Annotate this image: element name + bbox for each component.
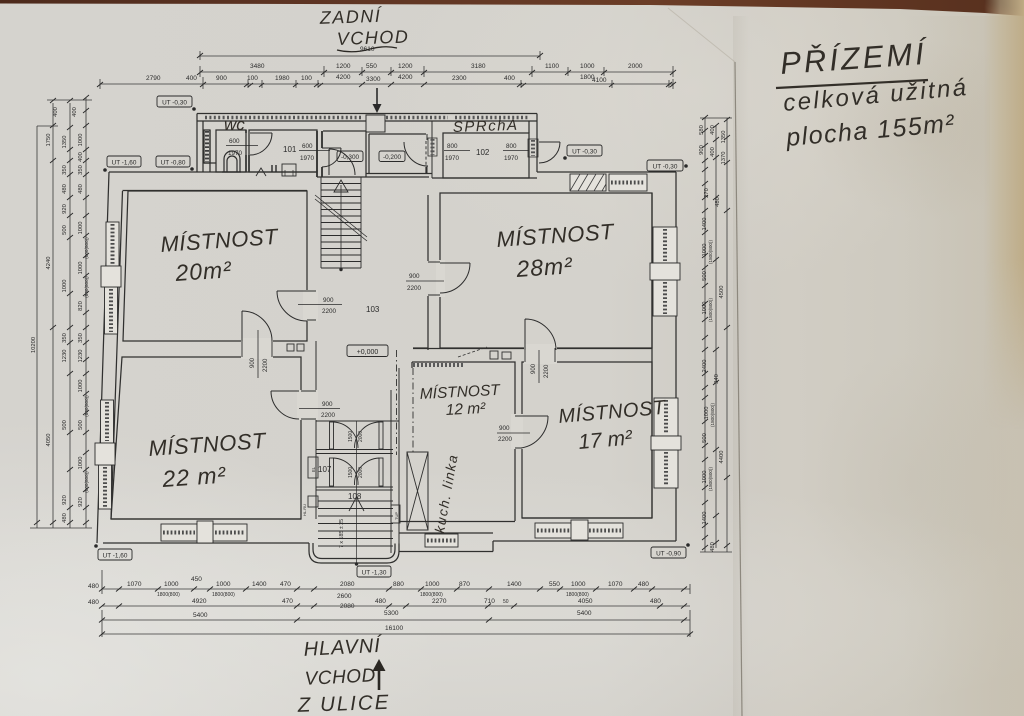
svg-text:580: 580 [699,125,705,135]
svg-text:2200: 2200 [407,285,422,292]
svg-text:900: 900 [250,357,256,368]
svg-text:920: 920 [62,204,68,214]
svg-text:600: 600 [229,138,240,145]
svg-text:5400: 5400 [193,612,208,619]
svg-text:4920: 4920 [192,598,207,605]
svg-text:UT -0,30: UT -0,30 [572,149,597,156]
svg-text:1800(800): 1800(800) [212,592,235,598]
svg-text:500: 500 [78,420,84,430]
svg-text:4200: 4200 [398,74,413,81]
svg-text:500: 500 [62,225,68,235]
svg-text:5400: 5400 [577,610,592,617]
svg-text:350: 350 [62,165,68,175]
svg-text:3300: 3300 [366,76,381,83]
svg-text:1230: 1230 [78,350,84,363]
svg-text:4240: 4240 [46,257,52,270]
svg-text:103: 103 [366,305,380,314]
svg-text:ZADNÍ: ZADNÍ [318,6,383,28]
svg-text:2300: 2300 [452,75,467,82]
svg-text:900: 900 [323,297,334,304]
svg-text:plocha 155m²: plocha 155m² [784,109,956,152]
svg-text:100: 100 [301,75,312,82]
svg-text:920: 920 [62,495,68,505]
svg-text:2080: 2080 [340,603,355,610]
svg-text:UT -1,30: UT -1,30 [362,570,387,577]
svg-text:TUP: TUP [394,512,399,520]
svg-text:2400: 2400 [702,360,708,373]
svg-text:2200: 2200 [321,412,336,419]
svg-text:1000: 1000 [425,581,440,588]
svg-text:7 x 185 ± 25: 7 x 185 ± 25 [339,519,345,548]
svg-text:900: 900 [322,401,333,408]
svg-text:1070: 1070 [127,581,142,588]
svg-text:4500: 4500 [719,286,725,299]
svg-text:1000: 1000 [78,222,84,235]
svg-text:1000: 1000 [78,457,84,470]
svg-text:UT -1,60: UT -1,60 [103,553,128,560]
svg-text:1230: 1230 [62,350,68,363]
svg-text:+0,000: +0,000 [357,349,379,356]
svg-text:400: 400 [72,107,78,117]
svg-text:UT -0,80: UT -0,80 [161,160,186,167]
svg-text:MÍSTNOST: MÍSTNOST [496,219,616,252]
svg-text:500: 500 [702,433,708,443]
svg-text:870: 870 [459,581,470,588]
svg-text:-0,300: -0,300 [341,154,360,161]
svg-text:480: 480 [710,542,716,552]
svg-text:Z ULICE: Z ULICE [296,691,390,716]
svg-text:MÍSTNOST: MÍSTNOST [148,428,268,461]
svg-text:480: 480 [715,197,721,207]
svg-text:480: 480 [78,184,84,194]
svg-text:800: 800 [447,143,458,150]
svg-text:(1800(800)): (1800(800)) [708,240,713,264]
svg-text:480: 480 [638,581,649,588]
svg-text:MÍSTNOST: MÍSTNOST [160,224,280,257]
svg-text:900: 900 [216,75,227,82]
svg-text:550: 550 [549,581,560,588]
svg-text:2790: 2790 [146,75,161,82]
svg-text:MÍSTNOST: MÍSTNOST [557,396,667,428]
svg-text:450: 450 [191,576,202,583]
svg-text:1000: 1000 [78,134,84,147]
svg-text:108: 108 [348,492,362,501]
svg-text:1400: 1400 [702,218,708,231]
svg-text:UT -0,30: UT -0,30 [653,164,678,171]
svg-text:900: 900 [531,363,537,374]
svg-text:SPRchA: SPRchA [453,117,519,136]
svg-text:UT -0,90: UT -0,90 [656,551,681,558]
svg-text:(800(800)): (800(800)) [84,237,89,259]
svg-text:2000: 2000 [358,467,364,478]
svg-text:1000: 1000 [164,581,179,588]
svg-text:1000: 1000 [78,380,84,393]
svg-text:20m²: 20m² [174,256,233,286]
svg-text:500: 500 [62,420,68,430]
svg-text:4050: 4050 [46,434,52,447]
svg-text:1980: 1980 [275,75,290,82]
svg-text:900: 900 [499,425,510,432]
svg-text:12 m²: 12 m² [445,400,486,419]
svg-text:wc: wc [224,115,245,134]
svg-text:(800(800)): (800(800)) [84,471,89,493]
svg-text:400: 400 [710,147,716,157]
svg-text:1500: 1500 [348,431,354,442]
svg-text:PŘÍZEMÍ: PŘÍZEMÍ [779,36,929,81]
svg-text:900: 900 [409,273,420,280]
svg-text:400: 400 [710,125,716,135]
svg-text:1100: 1100 [545,63,559,70]
svg-text:480: 480 [375,598,386,605]
svg-text:9610: 9610 [360,46,375,53]
svg-text:350: 350 [78,165,84,175]
svg-text:350: 350 [62,333,68,343]
svg-text:10200: 10200 [31,337,37,353]
svg-text:HLAVNÍ: HLAVNÍ [303,634,384,661]
svg-text:HL.RU: HL.RU [302,504,307,516]
svg-text:5300: 5300 [384,610,399,617]
svg-text:820: 820 [78,301,84,311]
svg-text:2200: 2200 [544,364,550,378]
svg-text:4100: 4100 [592,77,607,84]
svg-text:880: 880 [393,581,404,588]
svg-text:1970: 1970 [228,150,243,157]
svg-text:400: 400 [53,107,59,117]
svg-text:400: 400 [78,152,84,162]
svg-text:(1800(800)): (1800(800)) [708,467,713,491]
svg-text:1970: 1970 [504,155,519,162]
svg-text:270: 270 [704,188,710,198]
svg-text:102: 102 [476,148,490,157]
svg-text:(1800(800)): (1800(800)) [708,298,713,322]
svg-text:1000: 1000 [78,262,84,275]
svg-text:400: 400 [504,75,515,82]
svg-text:107: 107 [318,465,332,474]
svg-text:1400: 1400 [702,512,708,525]
svg-text:480: 480 [62,513,68,523]
svg-text:480: 480 [88,583,99,590]
svg-text:(800(800)): (800(800)) [84,276,89,298]
svg-text:1000: 1000 [216,581,231,588]
svg-text:17 m²: 17 m² [577,426,633,454]
svg-text:480: 480 [650,598,661,605]
svg-text:1350: 1350 [721,131,727,144]
svg-text:500: 500 [702,271,708,281]
svg-text:800: 800 [506,143,517,150]
svg-text:480: 480 [62,184,68,194]
svg-text:EL: EL [311,466,316,472]
svg-text:2000: 2000 [358,431,364,442]
svg-text:1000: 1000 [62,280,68,293]
svg-text:400: 400 [186,75,197,82]
svg-text:101: 101 [283,145,297,154]
svg-text:1200: 1200 [336,63,351,70]
svg-text:4400: 4400 [719,451,725,464]
svg-text:4050: 4050 [578,598,593,605]
svg-text:16100: 16100 [385,625,403,632]
svg-text:1970: 1970 [445,155,460,162]
svg-text:(1800(800)): (1800(800)) [710,403,715,427]
svg-text:3480: 3480 [250,63,265,70]
svg-text:900: 900 [699,145,705,155]
svg-text:1500: 1500 [348,467,354,478]
svg-text:UT -1,60: UT -1,60 [112,160,137,167]
svg-text:3180: 3180 [471,63,486,70]
svg-text:1000: 1000 [580,63,595,70]
svg-text:2600: 2600 [337,593,352,600]
svg-text:MÍSTNOST: MÍSTNOST [419,382,501,403]
svg-text:1750: 1750 [46,134,52,147]
svg-text:UT -0,30: UT -0,30 [162,100,187,107]
svg-text:1000: 1000 [571,581,586,588]
svg-text:470: 470 [282,598,293,605]
svg-text:4200: 4200 [336,74,351,81]
svg-text:340: 340 [714,374,720,384]
svg-text:50: 50 [503,599,509,605]
svg-text:600: 600 [302,143,313,150]
svg-text:1350: 1350 [62,136,68,149]
svg-text:28m²: 28m² [515,252,574,282]
svg-text:2080: 2080 [340,581,355,588]
svg-text:VCHOD: VCHOD [304,665,376,690]
svg-text:1400: 1400 [252,581,267,588]
svg-text:470: 470 [280,581,291,588]
svg-text:350: 350 [78,333,84,343]
svg-text:710: 710 [484,598,495,605]
svg-text:100: 100 [247,75,258,82]
svg-text:1400: 1400 [507,581,522,588]
svg-text:(800(800)): (800(800)) [84,395,89,417]
svg-text:-0,200: -0,200 [383,154,402,161]
svg-text:2200: 2200 [263,358,269,372]
svg-text:2200: 2200 [322,308,337,315]
svg-text:1370: 1370 [721,152,727,165]
svg-text:920: 920 [78,497,84,507]
svg-text:1200: 1200 [398,63,413,70]
svg-text:1800(800): 1800(800) [157,592,180,598]
svg-text:550: 550 [366,63,377,70]
svg-text:1070: 1070 [608,581,623,588]
svg-text:2200: 2200 [498,436,513,443]
svg-text:1970: 1970 [300,155,315,162]
svg-text:2000: 2000 [628,63,643,70]
svg-text:22 m²: 22 m² [161,462,228,492]
svg-text:2270: 2270 [432,598,447,605]
svg-text:480: 480 [88,599,99,606]
